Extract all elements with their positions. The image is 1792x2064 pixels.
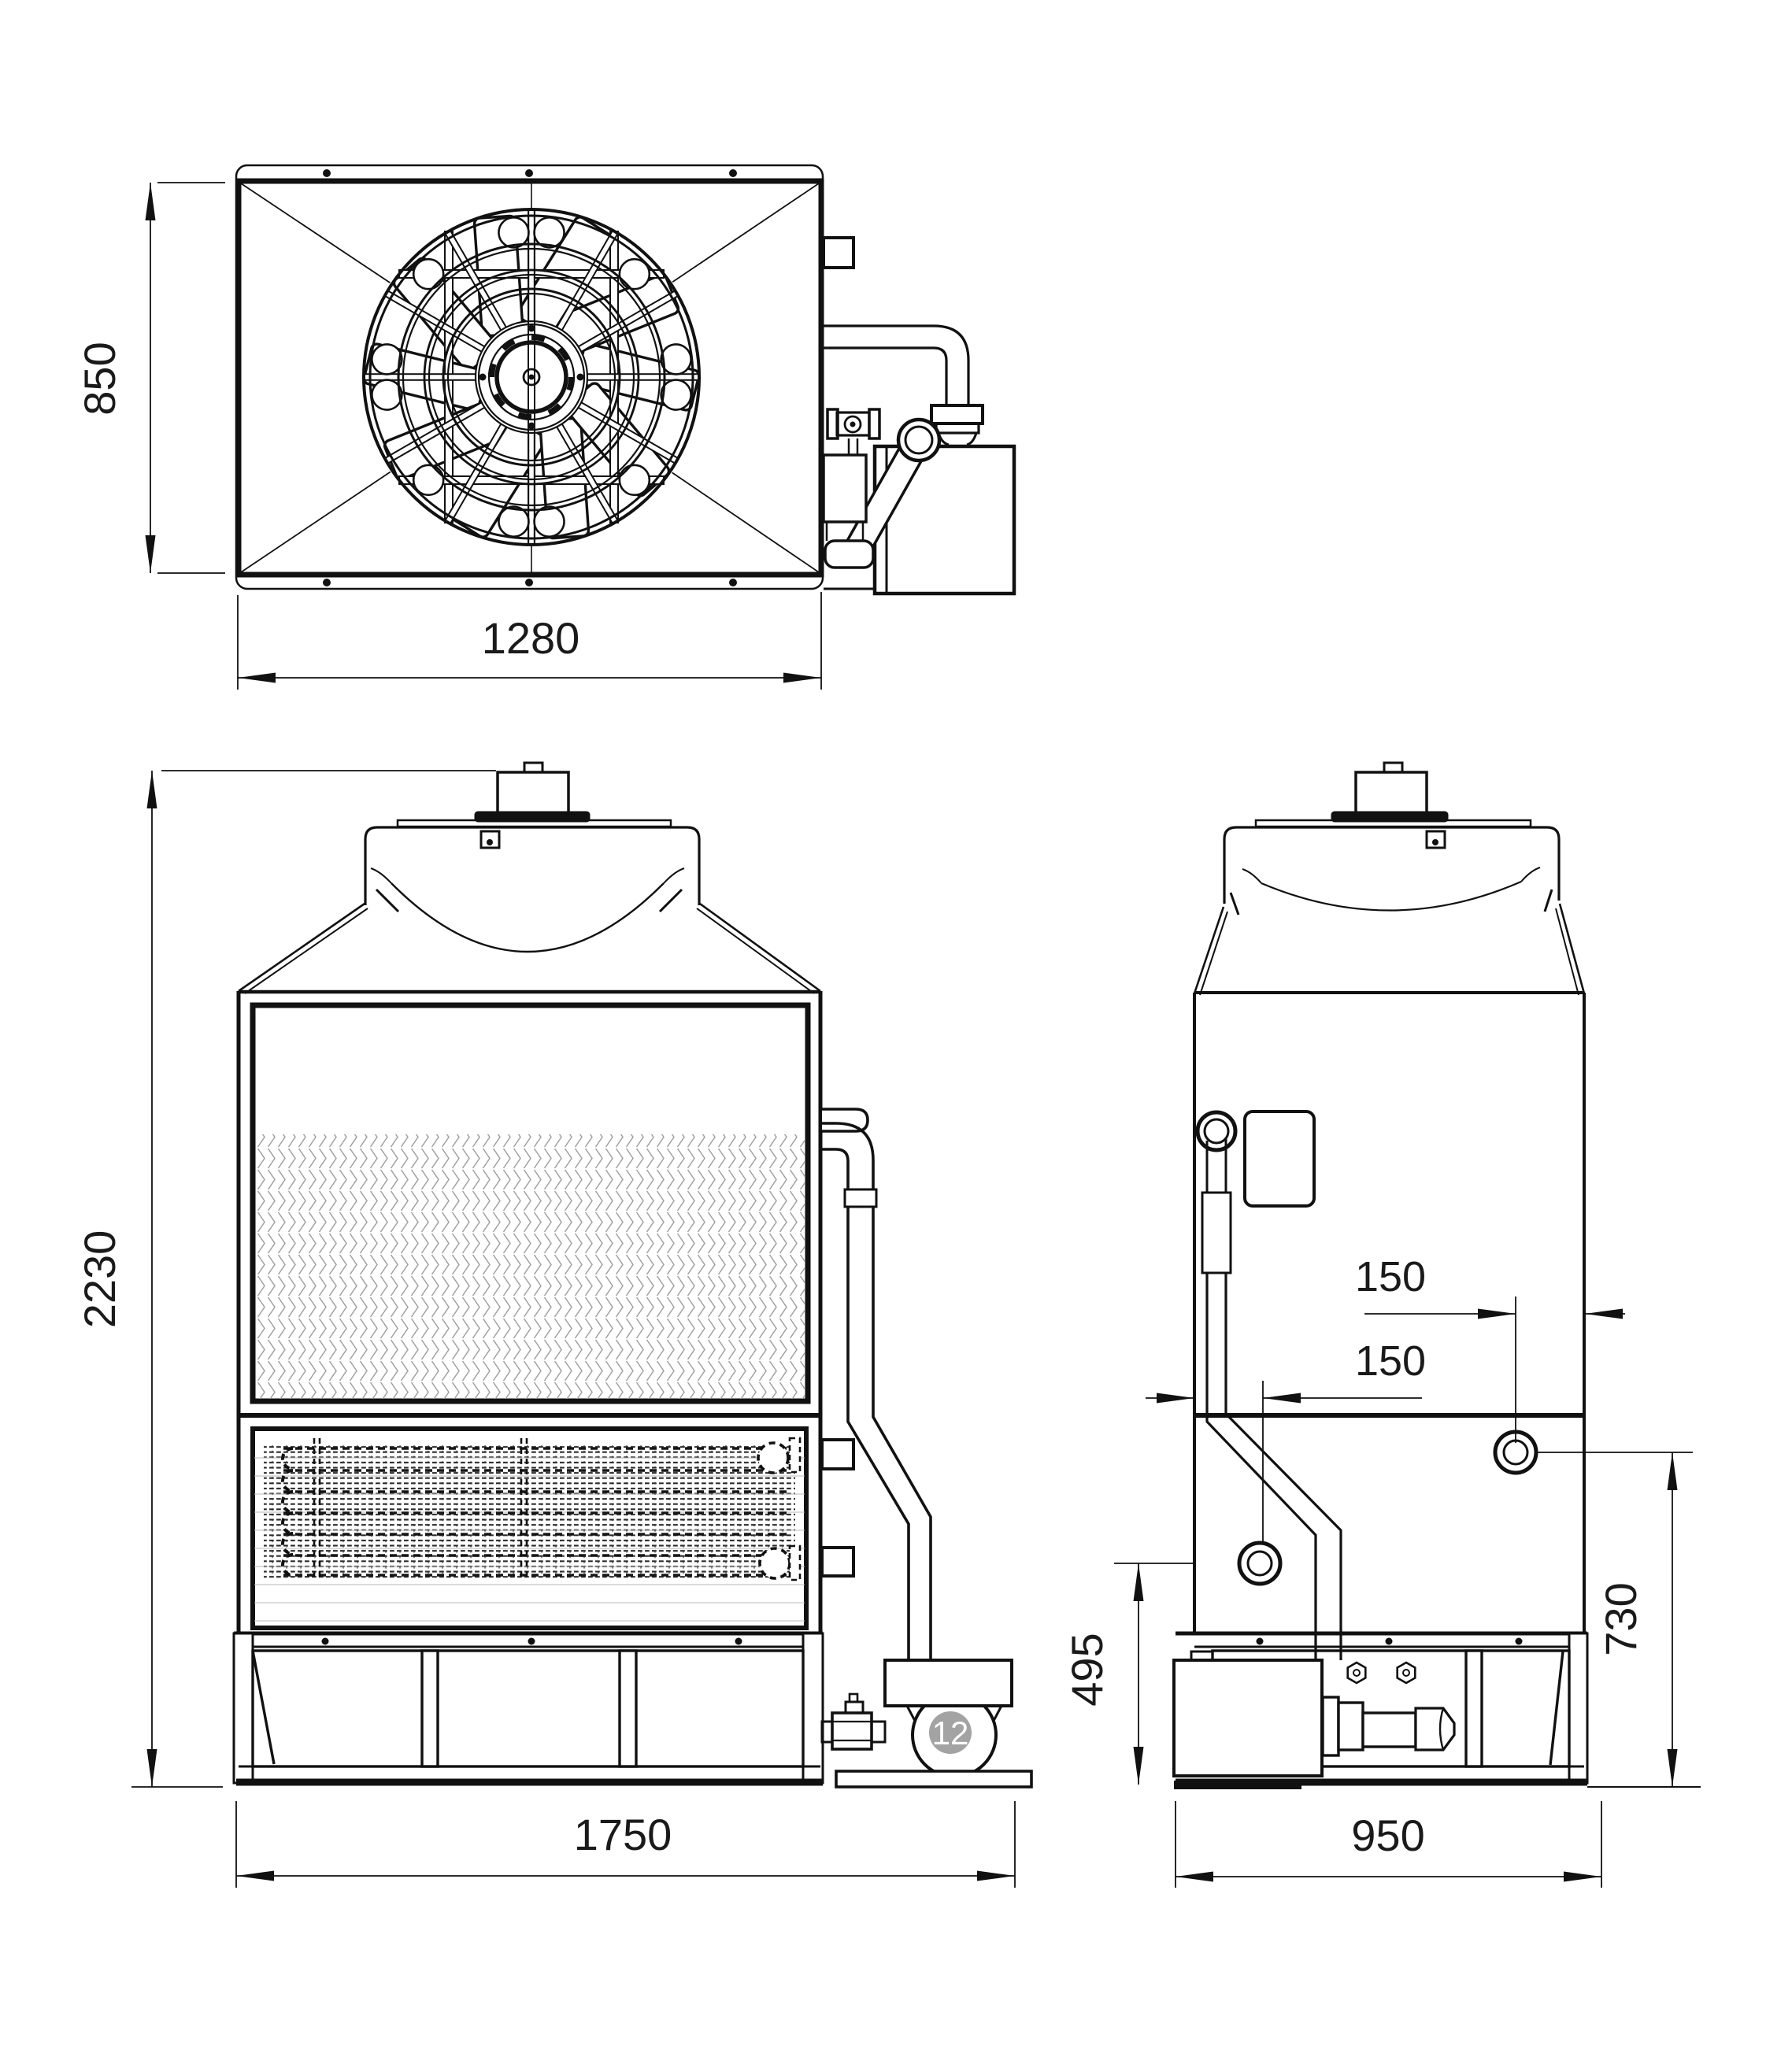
svg-text:150: 150 [1355, 1253, 1426, 1300]
svg-text:730: 730 [1596, 1582, 1646, 1655]
svg-text:850: 850 [75, 342, 124, 415]
svg-text:950: 950 [1351, 1811, 1424, 1860]
svg-text:1280: 1280 [482, 613, 580, 663]
svg-text:12: 12 [932, 1714, 969, 1751]
svg-text:495: 495 [1062, 1633, 1112, 1706]
svg-text:1750: 1750 [574, 1810, 672, 1859]
svg-text:2230: 2230 [75, 1230, 124, 1329]
svg-text:150: 150 [1355, 1337, 1426, 1385]
